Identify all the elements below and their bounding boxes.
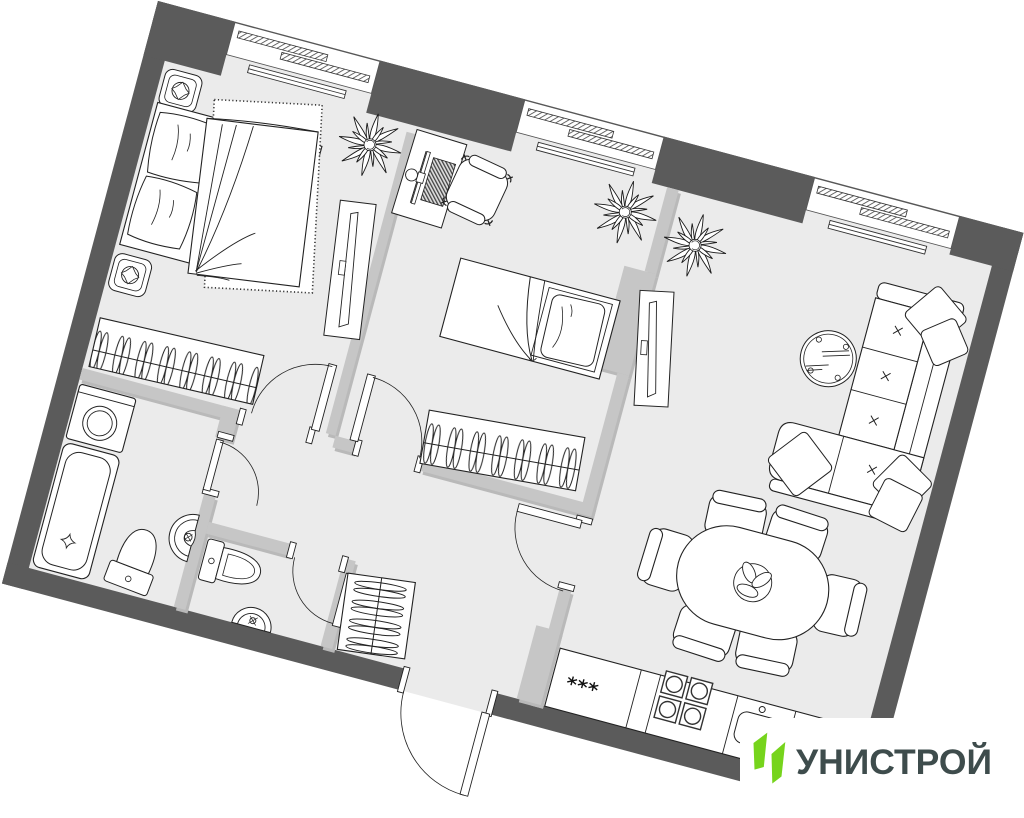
svg-text:УНИСТРОЙ: УНИСТРОЙ (796, 742, 992, 782)
